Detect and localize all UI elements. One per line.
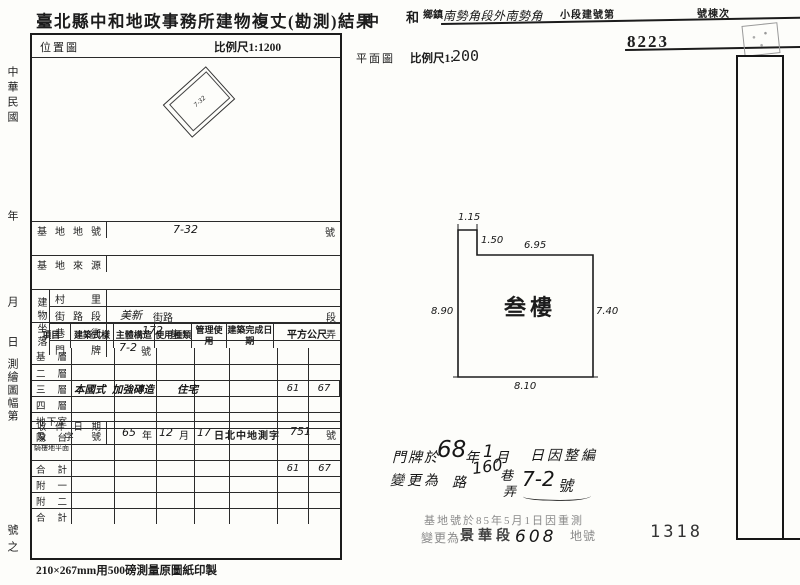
third-floor-style-value: 本國式 [74,382,106,397]
door-note-number-value: 7-2 [522,467,555,491]
paper-spec-note: 210×267mm用500磅測量原圖紙印製 [36,562,217,578]
row-label: 陽台 [32,429,72,444]
area-dec: 67 [309,461,340,476]
table-row-balcony: 陽台 [32,428,340,444]
floor-plan-label: 平面圖 [356,50,395,66]
survey-form-table: 位置圖 比例尺1:1200 7-32 基地地號 7-32 號 基地來源 [30,33,342,560]
dim-notch-side: 1.50 [481,235,503,246]
dim-bottom: 8.10 [514,381,536,392]
area-dec [309,493,340,508]
location-sketch-parcel: 7-32 [163,66,236,138]
floor-label: 叁樓 [504,290,556,322]
area-int [278,365,309,380]
street-label: 街路段 [50,307,107,323]
lot-note-section-value: 景華段 [460,525,514,545]
col-header-item: 項目 [32,323,71,348]
area-int [278,445,309,460]
lot-note-suffix: 地號 [570,527,596,544]
lot-note-number-value: 608 [515,527,556,547]
lot-number-label: 基地地號 [32,222,107,238]
row-label: 合計 [32,461,72,476]
table-row-annex-two: 附二 [32,492,340,508]
building-number-label: 小段建號第 [560,6,615,21]
area-int [278,493,309,508]
door-note-suffix: 日因整編 [530,445,598,465]
area-dec [309,413,340,428]
door-note-road-word: 路 [452,472,466,492]
floor-plan-drawing: 1.15 1.50 6.95 8.90 7.40 8.10 叁樓 [448,218,614,398]
door-note-alley-word: 弄 [503,481,516,500]
col-header-square-meters: 平方公尺 [274,323,340,348]
margin-day-label: 日 [4,336,20,351]
measure-table-header: 項目 建築式樣 主體構造 使用種類 管理使用 建築完成日期 平方公尺 [32,322,340,348]
margin-month-label: 月 [4,296,20,311]
margin-era-label: 中華民國 [4,66,20,126]
dim-left: 8.90 [431,306,453,317]
area-int [278,397,309,412]
area-dec: 67 [309,381,340,396]
area-int [278,348,309,364]
table-row-basement: 地下室 [32,412,340,428]
county-char-he: 和 [406,7,419,26]
area-int: 61 [278,461,309,476]
third-floor-use-value: 住宅 [177,382,198,397]
area-dec [309,445,340,460]
table-row-arcade: 騎樓地平面 [32,444,340,460]
floor-plan-scale-label: 比例尺1: [410,50,454,66]
street-value: 美新 [120,307,142,323]
right-column-baseline-extension [783,538,800,540]
table-row-fourth-floor: 四層 [32,396,340,412]
lot-number-unit: 號 [325,224,335,239]
table-row-annex-one: 附一 [32,476,340,492]
margin-sheet-number-label: 號之 [4,524,20,558]
row-label: 附二 [32,493,72,508]
measure-table-body: 基層 二層 三層 61 67 本國式 加強磚造 住宅 四 [32,348,340,524]
area-dec [309,509,340,524]
lot-note-change-prefix: 變更為 [421,529,460,546]
area-dec [309,397,340,412]
row-label: 四層 [32,397,72,412]
col-header-use-type: 使用種類 [155,323,192,348]
lot-source-label: 基地來源 [32,256,107,272]
serial-number: 1318 [650,522,703,542]
handwriting-flourish [523,489,591,502]
margin-year-label: 年 [4,210,20,225]
area-int [278,509,309,524]
table-row-base-floor: 基層 [32,348,340,364]
row-label: 地下室 [32,413,72,428]
township-label: 鄉鎮 [423,6,443,21]
street-row: 街路段 美新 街路 段 [50,306,340,323]
area-int: 61 [278,381,309,396]
door-note-change-prefix: 變更為 [390,470,441,490]
village-label: 村里 [50,290,107,306]
col-header-style: 建築式樣 [71,323,113,348]
col-header-completion-date: 建築完成日期 [227,323,274,348]
door-note-prefix: 門牌於 [392,447,440,467]
area-dec [309,477,340,492]
dim-right: 7.40 [596,306,618,317]
lot-number-row: 基地地號 7-32 號 [32,221,340,238]
table-row-second-floor: 二層 [32,364,340,380]
area-dec [309,429,340,444]
row-label: 基層 [32,348,72,364]
sketch-lot-number: 7-32 [192,94,207,108]
third-floor-structure-value: 加強磚造 [112,382,154,397]
right-blank-column [736,55,784,540]
door-note-lane-value: 160 [471,455,504,478]
margin-map-sheet-label: 測繪圖幅第 [4,358,20,423]
row-label: 騎樓地平面 [32,445,72,460]
row-label: 附一 [32,477,72,492]
location-sketch-inner: 7-32 [169,71,230,131]
lot-source-row: 基地來源 [32,255,340,272]
location-map-canvas: 7-32 [32,57,340,199]
area-dec [309,348,340,364]
floor-plan-scale-value: 200 [452,47,479,65]
row-label: 二層 [32,365,72,380]
area-int [278,477,309,492]
county-char-zhong: 中 [364,10,379,31]
village-row: 村里 [50,290,340,306]
location-map-label: 位置圖 [40,39,79,55]
row-label: 三層 [32,381,72,396]
row-label: 合計 [32,509,72,524]
col-header-structure: 主體構造 [114,323,155,348]
dim-top: 6.95 [524,240,546,251]
col-header-management: 管理使用 [192,323,226,348]
crossed-out-section-name: 南勢角段外南勢角 [443,7,800,24]
table-row-subtotal: 合計 61 67 [32,460,340,476]
area-dec [309,365,340,380]
location-map-scale: 比例尺1:1200 [214,39,281,55]
lot-number-value: 7-32 [173,223,198,236]
stamp-box [741,22,780,57]
table-row-third-floor: 三層 61 67 本國式 加強磚造 住宅 [32,380,340,396]
area-int [278,413,309,428]
door-note-year-value: 68 [437,437,466,463]
area-int [278,429,309,444]
location-map-header: 位置圖 比例尺1:1200 [32,35,340,57]
page-title: 臺北縣中和地政事務所建物複丈(勘測)結果 [36,8,374,32]
scanned-survey-form: 臺北縣中和地政事務所建物複丈(勘測)結果 中 和 鄉鎮 南勢角段外南勢角 小段建… [0,0,800,585]
dong-sequence-label: 號棟次 [697,5,730,20]
table-row-grand-total: 合計 [32,508,340,524]
dim-notch-top: 1.15 [458,212,480,223]
